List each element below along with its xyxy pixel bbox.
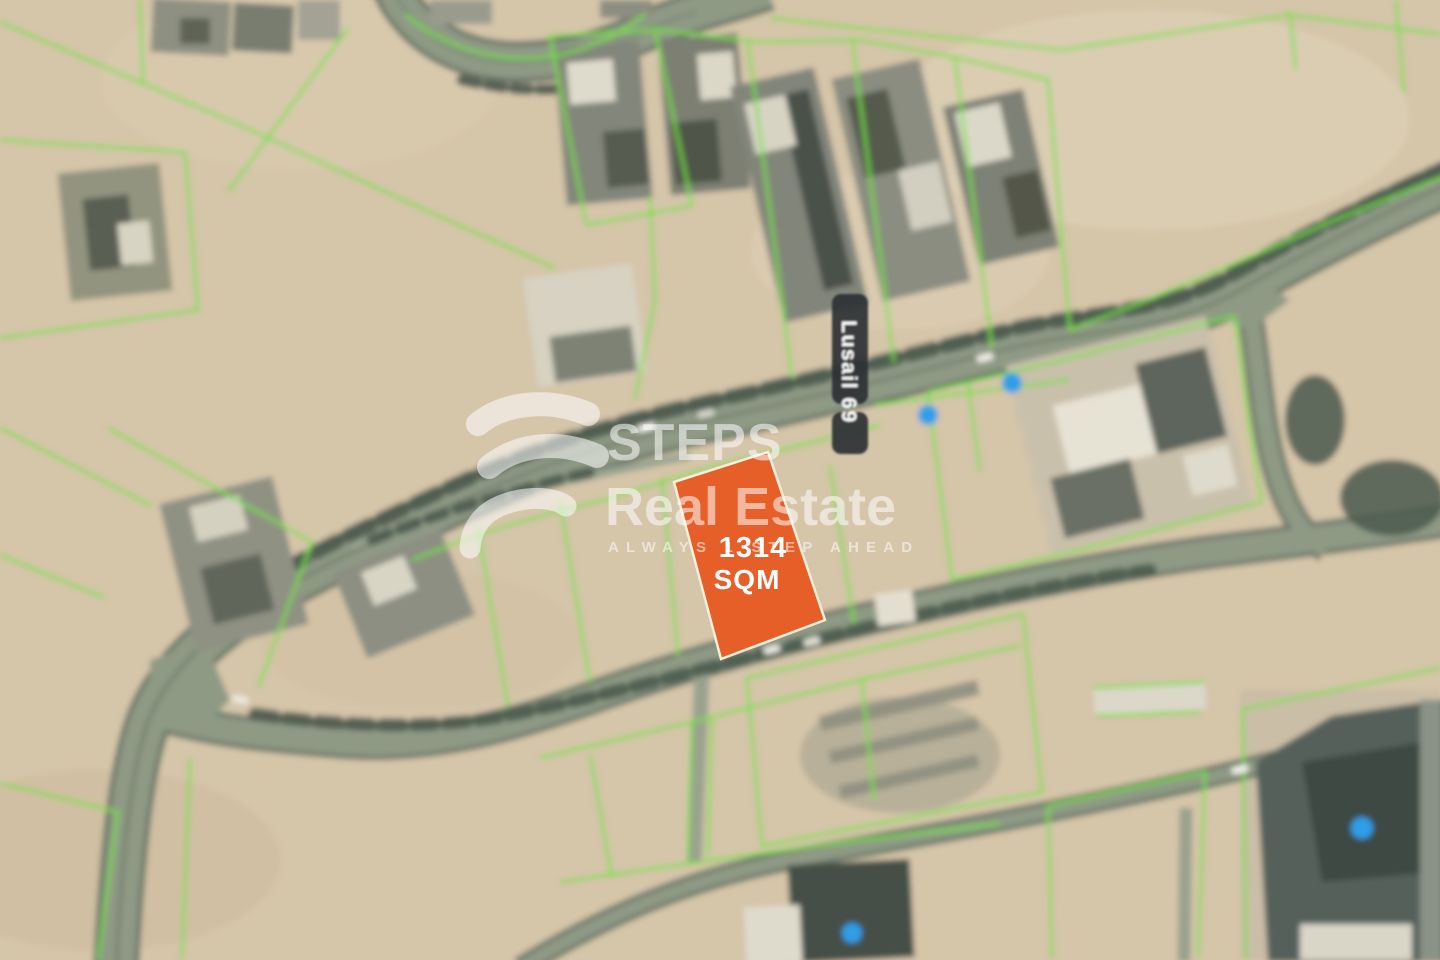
- street-label: Lusail 69: [832, 294, 868, 454]
- plot-area-label: 1314 SQM: [714, 532, 788, 595]
- marker-dot: [1002, 373, 1022, 393]
- tree-clump: [1285, 375, 1345, 465]
- marker-dot: [842, 923, 862, 943]
- plot-area-unit: SQM: [714, 564, 781, 595]
- marker-dot: [1351, 817, 1373, 839]
- street-name-text: Lusail 69: [837, 320, 860, 423]
- marker-dot: [918, 405, 938, 425]
- watermark-brand-top: STEPS: [607, 414, 783, 472]
- plot-area-value: 1314: [719, 532, 788, 564]
- satellite-map-image[interactable]: Lusail 69 STEPS Real Estate ALWAYS 1 STE…: [0, 0, 1440, 960]
- tree-clump: [1340, 460, 1440, 536]
- watermark-brand-bottom: Real Estate: [605, 477, 896, 537]
